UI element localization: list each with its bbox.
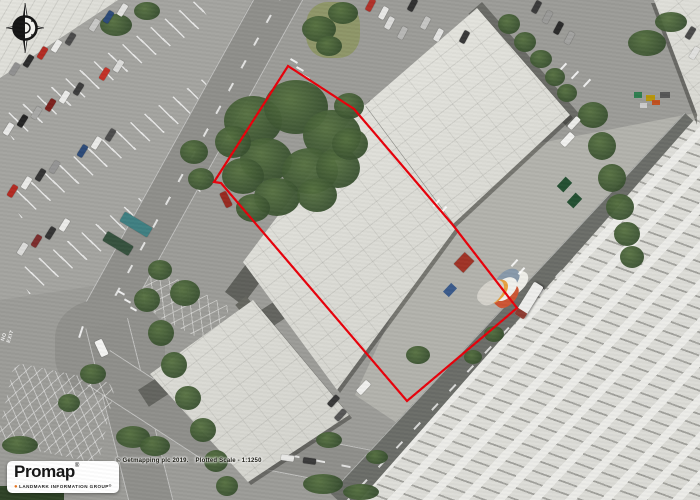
promap-logo: Promap® ●LANDMARK INFORMATION GROUP®: [7, 461, 119, 493]
registered-mark: ®: [75, 463, 79, 469]
registered-mark: ®: [109, 484, 112, 488]
attribution-text: © Getmapping plc 2019.Plotted Scale - 1:…: [116, 458, 262, 464]
orange-dot-icon: ●: [14, 484, 18, 490]
site-boundary[interactable]: [214, 66, 517, 401]
boundary-overlay: [0, 0, 700, 500]
copyright-text: © Getmapping plc 2019.: [116, 458, 189, 464]
compass-icon: [6, 3, 44, 53]
promap-tagline: ●LANDMARK INFORMATION GROUP®: [14, 484, 112, 490]
aerial-map-canvas[interactable]: NO EXIT: [0, 0, 700, 500]
plotted-scale-text: Plotted Scale - 1:1250: [196, 458, 262, 464]
promap-brand-text: Promap: [14, 462, 75, 481]
